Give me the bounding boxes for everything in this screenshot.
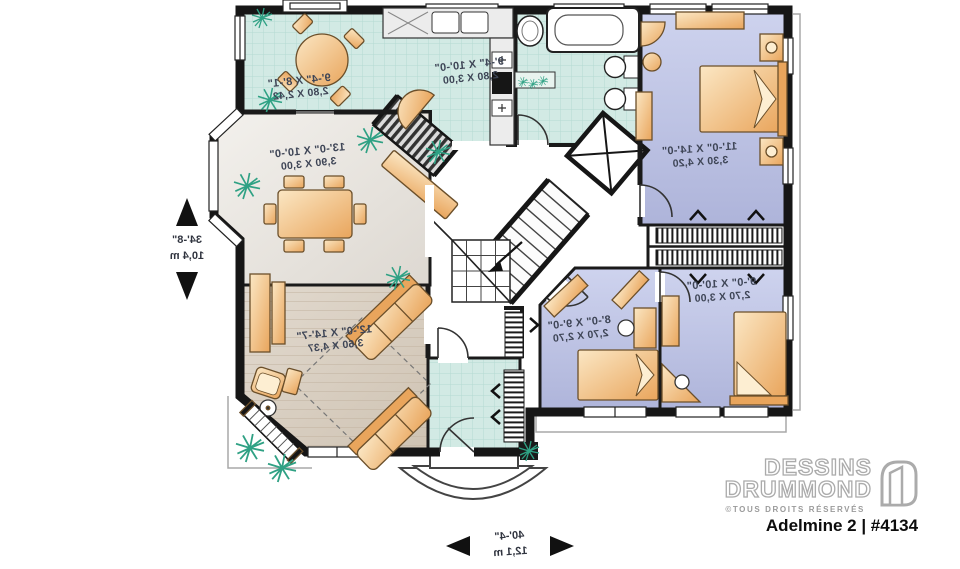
dimension-arrow-up-icon xyxy=(176,198,198,226)
width-metric: 12,1 m xyxy=(493,544,528,562)
rights-text: ©TOUS DROITS RÉSERVÉS xyxy=(725,505,865,514)
dresser-icon xyxy=(676,12,744,29)
stair-winder-grid xyxy=(426,214,510,302)
floorplan-canvas: 9'-4" X 8'-1" 2,80 X 2,42 9'-4" X 10'-0"… xyxy=(0,0,960,569)
dining-table-icon xyxy=(278,190,352,238)
dimension-arrow-left-icon xyxy=(446,536,470,556)
depth-metric: 10,4 m xyxy=(170,249,204,265)
wall-unit-icon xyxy=(250,274,270,352)
overall-depth-dimension: 34'-8" 10,4 m xyxy=(170,233,204,265)
sink-icon xyxy=(432,12,459,33)
brand-wordmark: DESSINS DRUMMOND xyxy=(725,457,872,501)
room-label-bedroom-3: 9'-0" X 10'-0" 2,70 X 3,00 xyxy=(686,275,758,308)
dresser-icon xyxy=(662,296,679,346)
depth-imperial: 34'-8" xyxy=(170,233,204,249)
overall-width-dimension: 40'-4" 12,1 m xyxy=(492,528,528,562)
desk-icon xyxy=(634,308,656,348)
plan-name: Adelmine 2 | #4134 xyxy=(757,516,927,536)
room-label-master-bedroom: 11'-0" X 14'-0" 3,30 X 4,20 xyxy=(661,139,738,172)
dimension-arrow-right-icon xyxy=(550,536,574,556)
dimension-arrow-down-icon xyxy=(176,272,198,300)
drummond-door-logo-icon xyxy=(874,455,920,507)
brand-line2: DRUMMOND xyxy=(725,479,872,501)
plant-shelf xyxy=(515,72,555,88)
